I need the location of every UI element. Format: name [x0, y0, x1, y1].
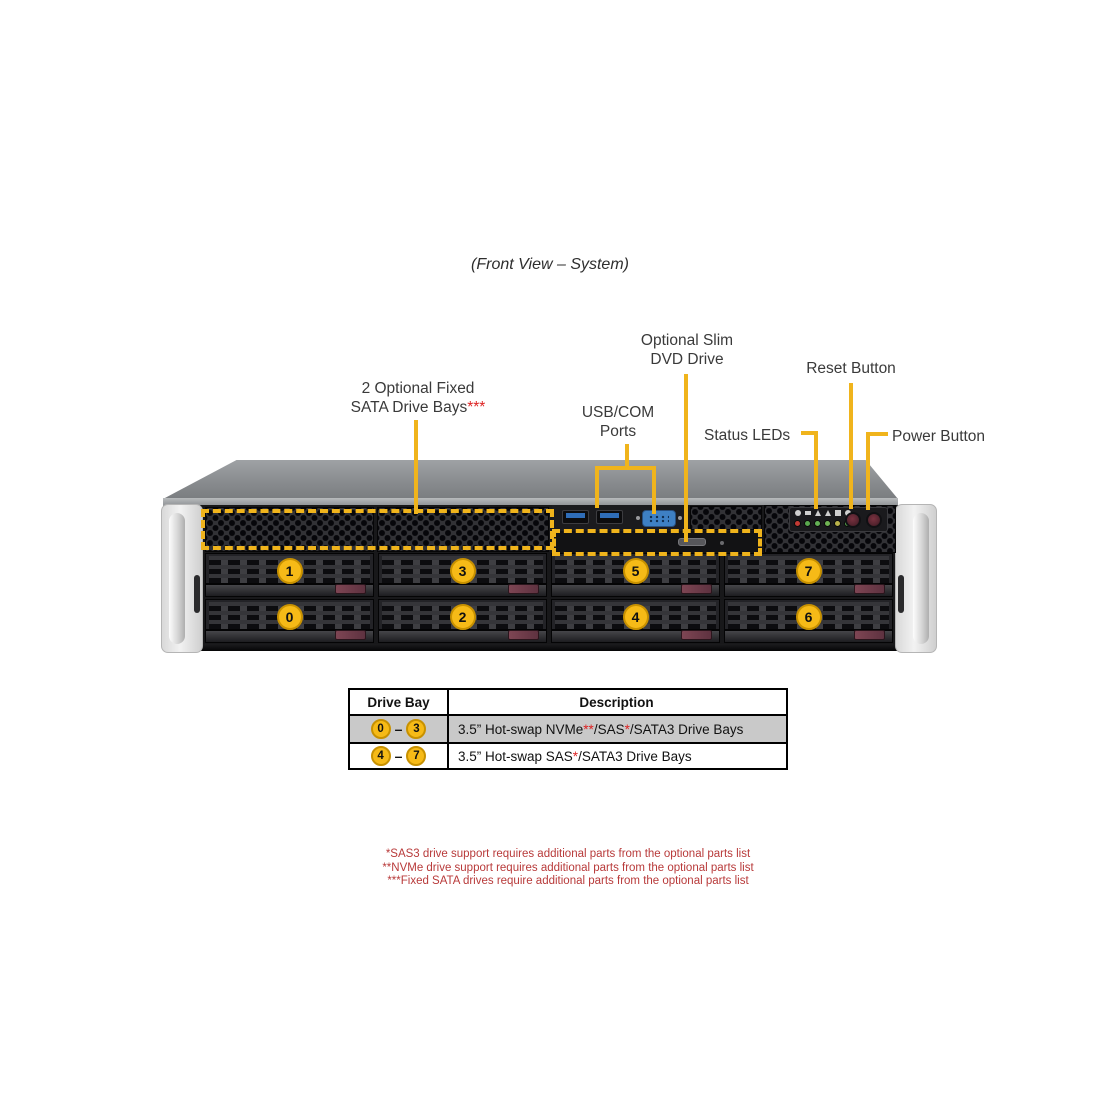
drive-bay-table: Drive Bay Description 0 – 3 3.5” Hot-swa…	[348, 688, 788, 770]
com-port-icon	[636, 509, 682, 527]
com-port-body	[642, 510, 676, 527]
callout-line-power-vertical	[866, 432, 870, 510]
drive-bay-number: 6	[796, 604, 822, 630]
range-dash: –	[395, 721, 403, 737]
drive-bay-number: 0	[277, 604, 303, 630]
rack-ear-left-slot	[194, 575, 200, 613]
bay-end-badge: 7	[406, 746, 426, 766]
description-cell: 3.5” Hot-swap SAS*/SATA3 Drive Bays	[447, 744, 784, 768]
drive-tray: 3	[378, 553, 547, 597]
footnote-line: **NVMe drive support requires additional…	[150, 862, 986, 876]
table-row: 4 – 7 3.5” Hot-swap SAS*/SATA3 Drive Bay…	[350, 742, 786, 768]
bay-range-cell: 0 – 3	[350, 716, 447, 742]
tray-handle	[206, 583, 373, 596]
table-header-row: Drive Bay Description	[350, 690, 786, 716]
drive-bay-number: 5	[623, 558, 649, 584]
usb-tongue	[566, 513, 585, 518]
drive-tray: 7	[724, 553, 893, 597]
info-icon	[805, 511, 811, 515]
optional-dvd-outline	[552, 529, 762, 556]
label-power-text: Power Button	[892, 428, 985, 445]
description-text: /SAS	[594, 722, 625, 737]
tray-release-latch	[854, 630, 885, 640]
label-reset-text: Reset Button	[806, 360, 896, 377]
status-leds	[794, 520, 851, 527]
bay-range: 4 – 7	[371, 746, 427, 766]
figure-title: (Front View – System)	[0, 256, 1100, 274]
chassis-top-surface	[163, 460, 898, 499]
com-screw-icon	[678, 516, 682, 520]
com-screw-icon	[636, 516, 640, 520]
overheat-warning-icon	[815, 510, 821, 516]
footnote-line: ***Fixed SATA drives require additional …	[150, 875, 986, 889]
description-cell: 3.5” Hot-swap NVMe**/SAS*/SATA3 Drive Ba…	[447, 716, 784, 742]
tray-release-latch	[508, 630, 539, 640]
label-power-button: Power Button	[892, 427, 985, 446]
tray-release-latch	[854, 584, 885, 594]
rack-ear-right	[895, 504, 937, 653]
power-button	[866, 512, 882, 528]
label-usb-com-ports: USB/COM Ports	[582, 403, 654, 441]
label-status-text: Status LEDs	[704, 427, 790, 444]
front-vent-mid	[690, 506, 762, 530]
power-fail-warning-icon	[825, 510, 831, 516]
com-pins	[649, 515, 669, 523]
tray-handle	[379, 629, 546, 642]
bay-end-badge: 3	[406, 719, 426, 739]
drive-bay-number: 1	[277, 558, 303, 584]
tray-release-latch	[508, 584, 539, 594]
status-led	[804, 520, 811, 527]
optional-sata-bays-outline	[201, 509, 554, 550]
label-reset-button: Reset Button	[806, 359, 896, 378]
bay-start-badge: 4	[371, 746, 391, 766]
callout-line-sata-bays	[414, 420, 418, 514]
drive-tray: 0	[205, 599, 374, 643]
footnote-line: *SAS3 drive support requires additional …	[150, 848, 986, 862]
tray-handle	[552, 583, 719, 596]
callout-line-power-horizontal	[870, 432, 888, 436]
label-optional-sata-bays: 2 Optional Fixed SATA Drive Bays***	[351, 379, 486, 417]
figure-page: (Front View – System) Optional Slim DVD …	[0, 0, 1100, 1100]
description-text: 3.5” Hot-swap SAS	[458, 749, 573, 764]
callout-line-dvd	[684, 374, 688, 542]
status-led	[814, 520, 821, 527]
tray-release-latch	[681, 630, 712, 640]
tray-release-latch	[335, 630, 366, 640]
status-led	[824, 520, 831, 527]
table-header-description: Description	[447, 690, 784, 714]
label-optional-dvd: Optional Slim DVD Drive	[641, 331, 733, 369]
drive-tray: 1	[205, 553, 374, 597]
label-status-leds: Status LEDs	[704, 426, 790, 445]
chassis-bottom-edge	[163, 644, 935, 651]
tray-handle	[552, 629, 719, 642]
callout-line-reset	[849, 383, 853, 509]
status-led-icons	[795, 510, 851, 516]
tray-handle	[206, 629, 373, 642]
rack-ear-left	[161, 504, 203, 653]
drive-bay-number: 4	[623, 604, 649, 630]
bay-range: 0 – 3	[371, 719, 427, 739]
tray-handle	[725, 583, 892, 596]
label-sata-asterisks: ***	[467, 399, 485, 416]
callout-line-usb-bracket	[595, 466, 656, 470]
rack-handle-right	[913, 513, 929, 644]
bay-range-cell: 4 – 7	[350, 744, 447, 768]
callout-line-com-drop	[652, 466, 656, 514]
io-panel	[552, 505, 688, 531]
description-text: /SATA3 Drive Bays	[578, 749, 692, 764]
description-text: 3.5” Hot-swap NVMe	[458, 722, 583, 737]
reset-button	[845, 512, 861, 528]
tray-release-latch	[335, 584, 366, 594]
control-panel	[789, 507, 888, 532]
label-optional-dvd-text: Optional Slim DVD Drive	[641, 332, 733, 368]
power-led-icon	[795, 510, 801, 516]
rack-ear-right-slot	[898, 575, 904, 613]
drive-bay-number: 2	[450, 604, 476, 630]
callout-line-status-vertical	[814, 431, 818, 509]
drive-tray: 6	[724, 599, 893, 643]
drive-tray: 4	[551, 599, 720, 643]
callout-line-usb-drop	[595, 466, 599, 508]
drive-bay-number: 3	[450, 558, 476, 584]
drive-tray: 5	[551, 553, 720, 597]
usb-tongue	[600, 513, 619, 518]
label-usb-com-text: USB/COM Ports	[582, 404, 654, 440]
label-optional-sata-text: 2 Optional Fixed SATA Drive Bays	[351, 380, 475, 416]
range-dash: –	[395, 748, 403, 764]
drive-bay-number: 7	[796, 558, 822, 584]
status-led	[794, 520, 801, 527]
footnote-marker: **	[583, 722, 594, 737]
description-text: /SATA3 Drive Bays	[630, 722, 744, 737]
rack-handle-left	[169, 513, 185, 644]
usb-port-icon	[596, 510, 623, 524]
tray-handle	[725, 629, 892, 642]
hdd-activity-icon	[835, 510, 841, 516]
table-header-drive-bay: Drive Bay	[350, 690, 447, 714]
footnotes: *SAS3 drive support requires additional …	[150, 848, 986, 889]
usb-port-icon	[562, 510, 589, 524]
tray-release-latch	[681, 584, 712, 594]
drive-tray: 2	[378, 599, 547, 643]
bay-start-badge: 0	[371, 719, 391, 739]
table-row: 0 – 3 3.5” Hot-swap NVMe**/SAS*/SATA3 Dr…	[350, 716, 786, 742]
status-led	[834, 520, 841, 527]
tray-handle	[379, 583, 546, 596]
